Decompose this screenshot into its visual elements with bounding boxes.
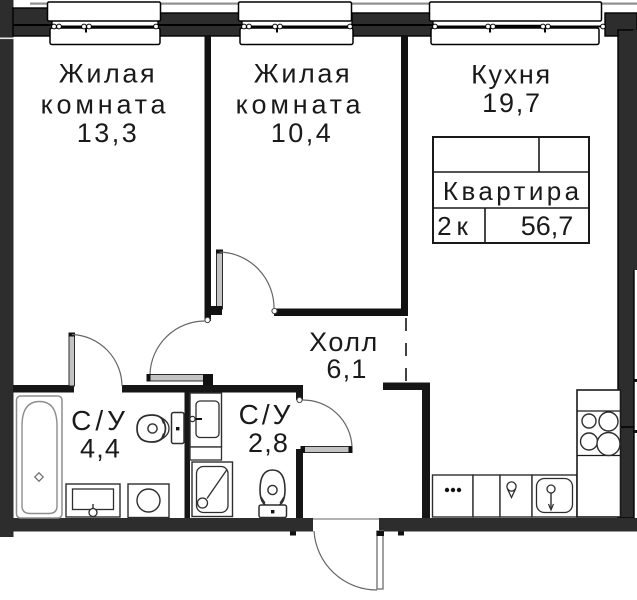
- svg-text:2,8: 2,8: [248, 428, 289, 458]
- svg-text:4,4: 4,4: [80, 434, 121, 464]
- svg-text:6,1: 6,1: [326, 354, 367, 384]
- svg-text:комната: комната: [236, 90, 365, 120]
- svg-text:комната: комната: [41, 90, 170, 120]
- svg-text:13,3: 13,3: [77, 118, 140, 148]
- svg-text:Кухня: Кухня: [471, 60, 552, 90]
- svg-text:19,7: 19,7: [482, 88, 542, 118]
- svg-text:Холл: Холл: [309, 327, 379, 357]
- svg-text:С/У: С/У: [239, 399, 294, 430]
- svg-text:10,4: 10,4: [271, 118, 334, 148]
- svg-text:Жилая: Жилая: [59, 59, 157, 89]
- svg-text:Жилая: Жилая: [254, 59, 352, 89]
- svg-text:2к: 2к: [437, 211, 473, 241]
- svg-text:56,7: 56,7: [521, 211, 574, 241]
- svg-text:Квартира: Квартира: [443, 176, 583, 206]
- svg-text:С/У: С/У: [71, 405, 129, 436]
